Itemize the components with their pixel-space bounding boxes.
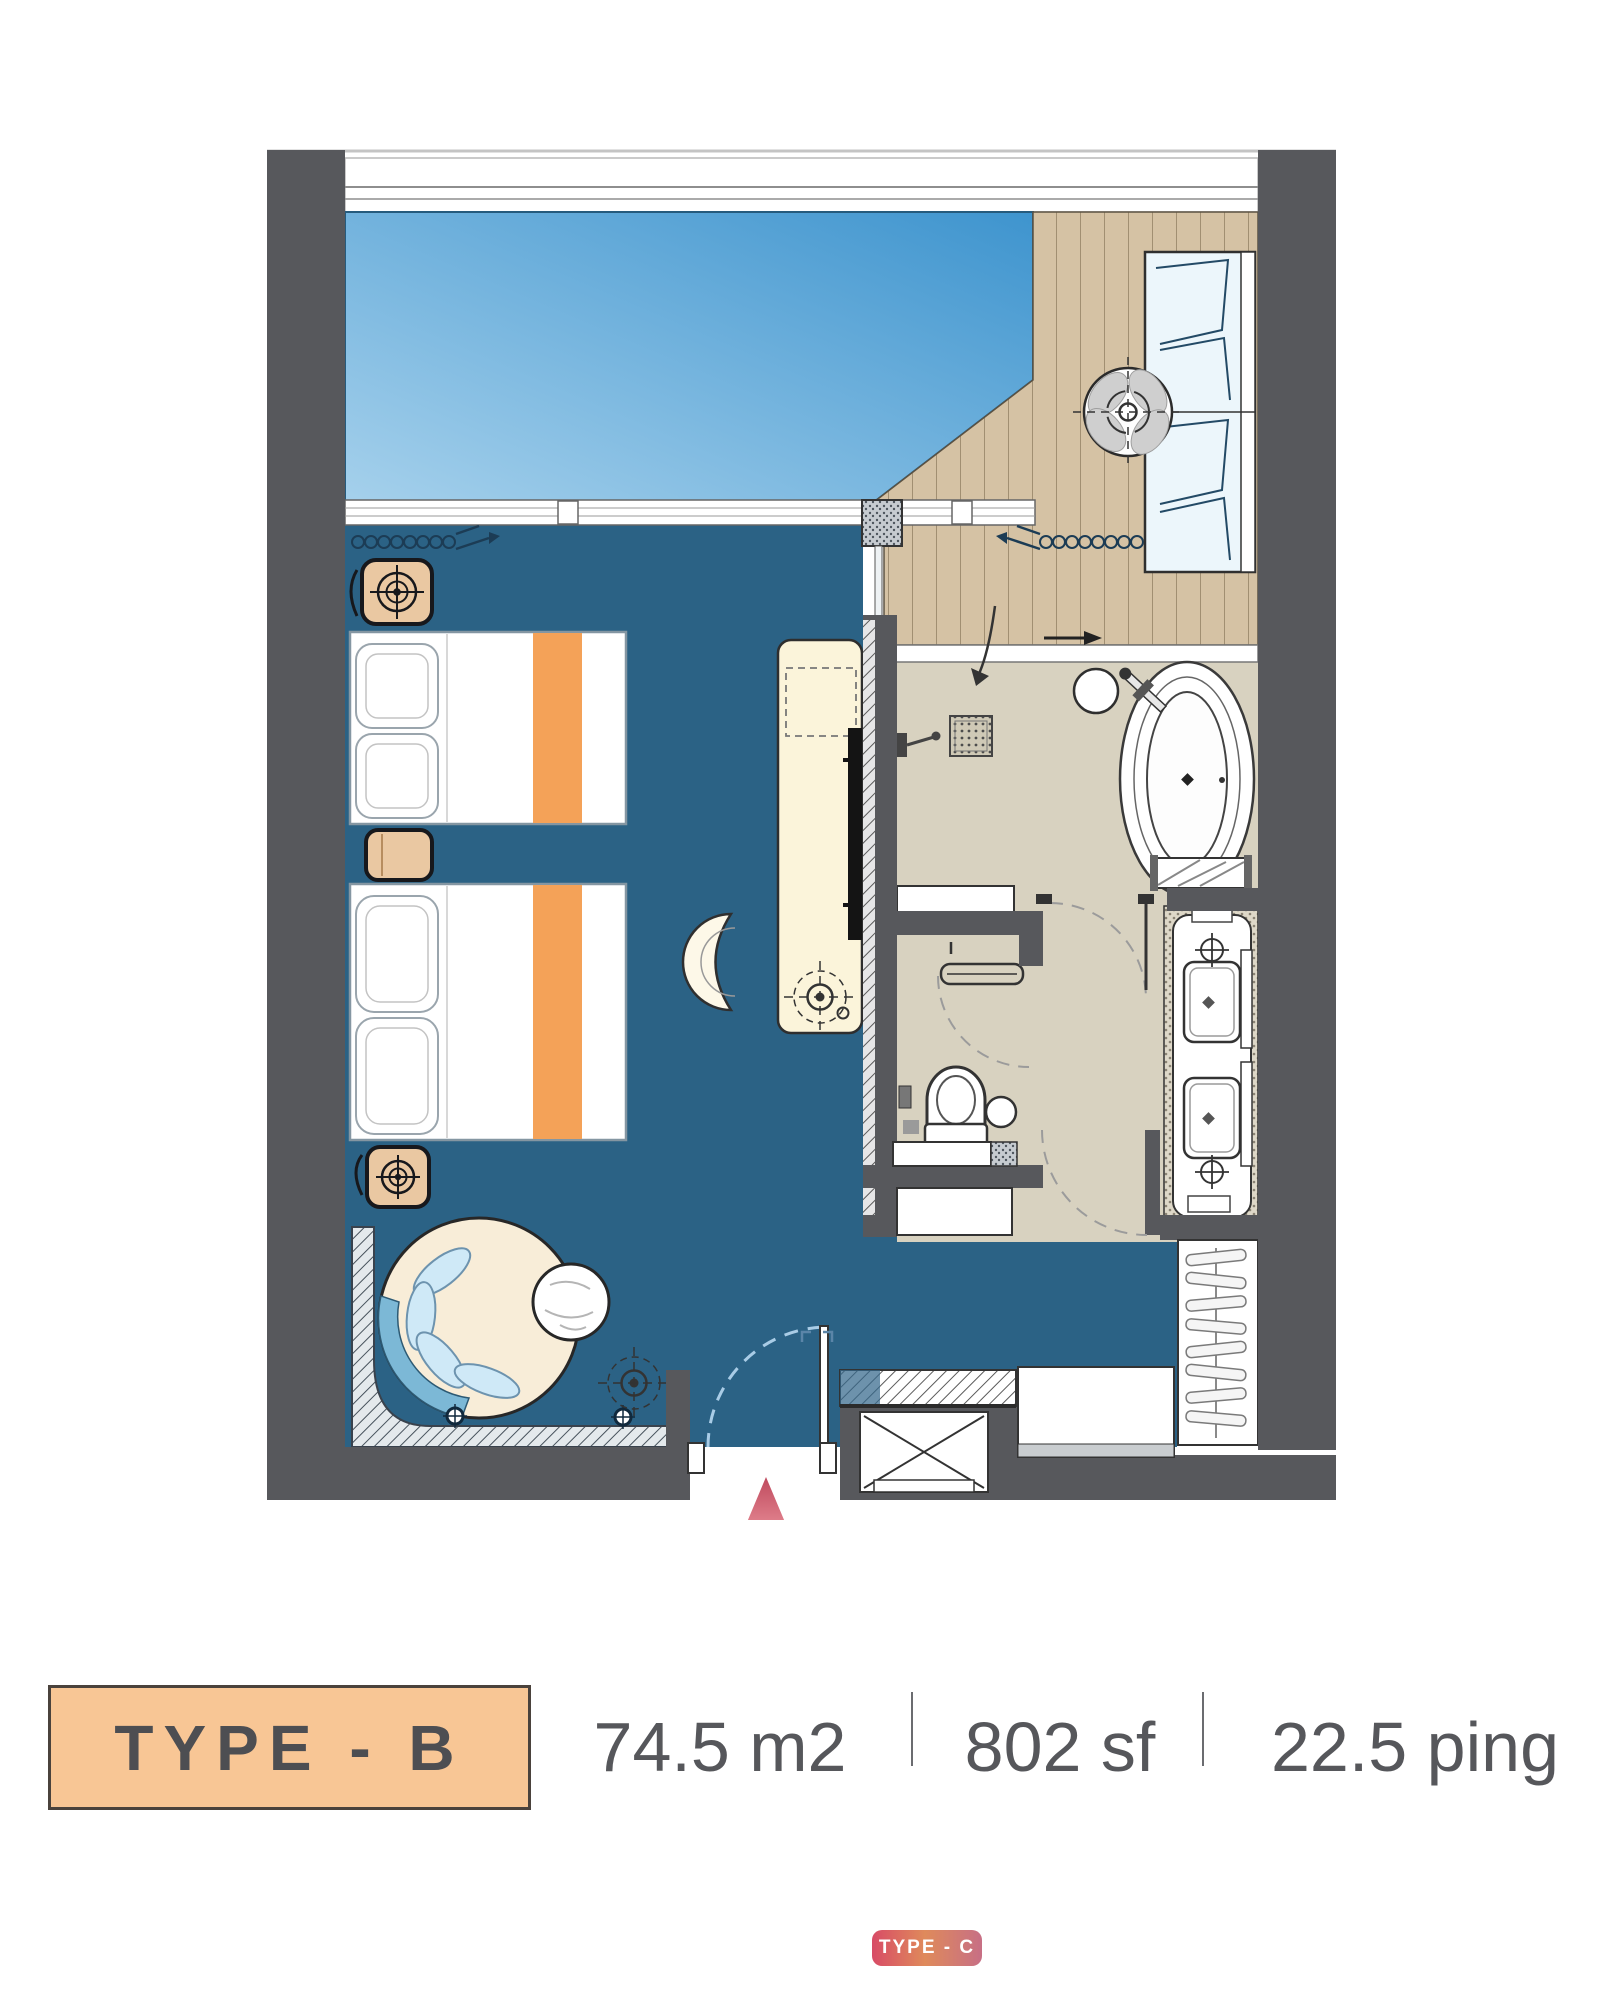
bath-threshold [884, 645, 1258, 662]
nightstand-1 [351, 560, 432, 624]
door-pier [666, 1370, 690, 1447]
type-c-badge[interactable]: TYPE - C [872, 1930, 982, 1966]
waste-bin-icon [986, 1097, 1016, 1127]
floor-plan-drawing [0, 0, 1615, 1520]
wc-door [897, 1188, 1012, 1235]
tv-console [778, 640, 862, 1033]
area-m2: 74.5 m2 [560, 1685, 880, 1810]
right-wall [1258, 150, 1336, 1450]
twin-bed [350, 632, 626, 824]
towel-rack [1150, 855, 1252, 891]
mirror [1241, 950, 1252, 1048]
type-label: TYPE - B [114, 1711, 464, 1785]
floor-drain-icon [950, 716, 992, 756]
door-hinge-icon [1036, 894, 1052, 904]
nightstand-2 [366, 830, 432, 880]
bed-runner [533, 885, 582, 1139]
double-bed [350, 884, 626, 1140]
type-label-box: TYPE - B [48, 1685, 531, 1810]
bottom-left-wall [345, 1447, 690, 1500]
spec-divider [1202, 1692, 1204, 1766]
wc-ledge [893, 1142, 1017, 1166]
bed-runner [533, 633, 582, 823]
minibar-cabinet [1018, 1367, 1174, 1457]
nightstand-3 [356, 1147, 429, 1207]
double-sink-vanity [1164, 906, 1258, 1226]
spec-divider [911, 1692, 913, 1766]
balcony-railing [345, 158, 1258, 212]
service-shaft [840, 1396, 1018, 1500]
sink [1184, 962, 1240, 1042]
bath-stool [1074, 669, 1118, 713]
north-arrow-icon [737, 1477, 795, 1520]
shower-bench [897, 886, 1014, 913]
side-table [533, 1264, 609, 1340]
mirror [1241, 1062, 1252, 1166]
toilet-roll-icon [899, 1086, 911, 1108]
door-leaf [820, 1326, 828, 1443]
luggage-rack [840, 1370, 1016, 1406]
left-wall [267, 150, 345, 1500]
area-sf: 802 sf [930, 1685, 1190, 1810]
tv [848, 728, 862, 940]
floorplan-page: TYPE - B 74.5 m2 802 sf 22.5 ping TYPE -… [0, 0, 1615, 2000]
window-band [345, 500, 1035, 525]
sink [1184, 1078, 1240, 1158]
area-ping: 22.5 ping [1240, 1685, 1590, 1810]
door-hinge-icon [1138, 894, 1154, 904]
wardrobe [1178, 1240, 1258, 1445]
type-c-label: TYPE - C [879, 1937, 975, 1959]
window-column [862, 500, 902, 546]
